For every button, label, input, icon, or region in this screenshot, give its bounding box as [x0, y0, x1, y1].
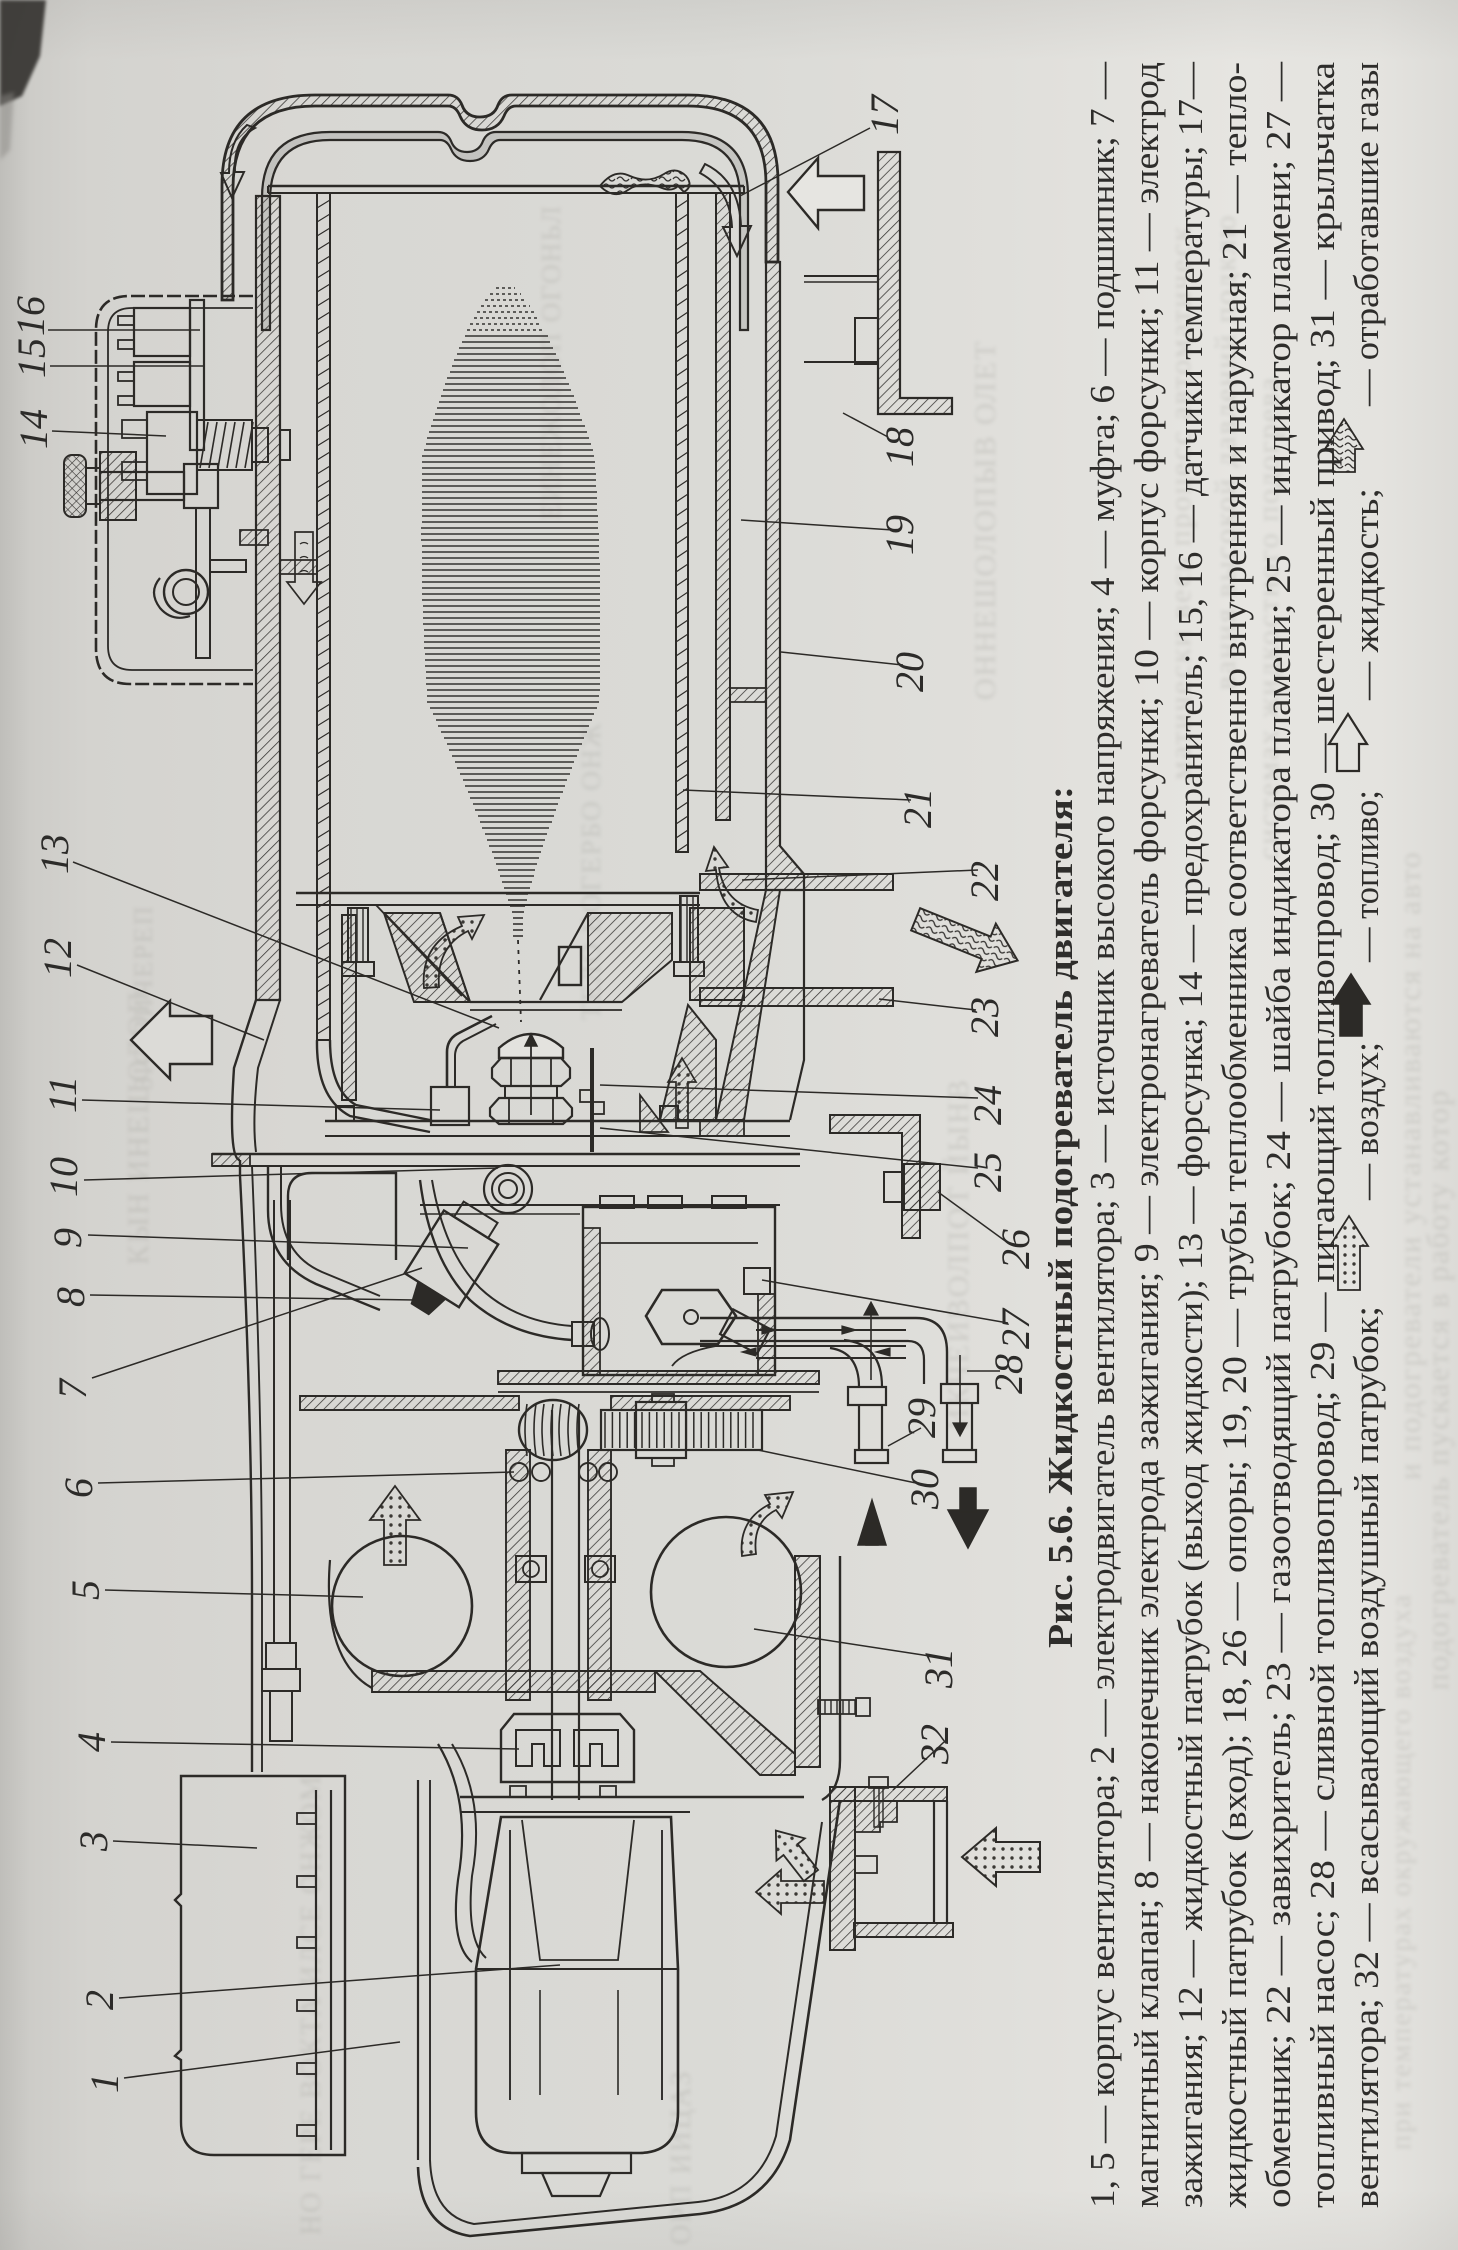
svg-text:1: 1 — [82, 2073, 127, 2093]
svg-text:14: 14 — [11, 409, 56, 449]
svg-text:— жидкость;: — жидкость; — [1347, 488, 1386, 701]
svg-text:21: 21 — [895, 788, 940, 828]
svg-text:жидкостный патрубок (вход); 18: жидкостный патрубок (вход); 18, 26 — опо… — [1215, 62, 1254, 2209]
svg-text:ОРП ИИЦАЗ: ОРП ИИЦАЗ — [666, 2070, 697, 2245]
svg-text:18: 18 — [877, 427, 922, 467]
svg-text:ЕИНЕЖОЛОП ОГОНЬЛ: ЕИНЕЖОЛОП ОГОНЬЛ — [536, 204, 566, 520]
svg-text:9: 9 — [45, 1228, 90, 1248]
svg-text:подогреватель пускается в рабо: подогреватель пускается в работу котор — [1420, 1088, 1455, 1690]
svg-text:29: 29 — [899, 1398, 944, 1438]
svg-text:24: 24 — [965, 1085, 1010, 1125]
svg-text:26: 26 — [993, 1229, 1038, 1269]
svg-text:3: 3 — [71, 1831, 116, 1852]
svg-text:22: 22 — [962, 861, 1007, 901]
svg-text:1, 5 — корпус вентилятора; 2 —: 1, 5 — корпус вентилятора; 2 — электродв… — [1083, 61, 1122, 2208]
svg-text:4: 4 — [69, 1732, 114, 1752]
svg-text:11: 11 — [40, 1076, 85, 1113]
svg-text:зажигания; 12 — жидкостный пат: зажигания; 12 — жидкостный патрубок (вых… — [1171, 61, 1210, 2208]
svg-text:топливный насос; 28 — сливной: топливный насос; 28 — сливной топливопро… — [1303, 61, 1342, 2208]
svg-text:7: 7 — [50, 1377, 95, 1399]
svg-text:— отработавшие газы: — отработавшие газы — [1347, 62, 1386, 407]
svg-text:5: 5 — [63, 1580, 108, 1600]
svg-text:20: 20 — [887, 652, 932, 692]
svg-text:13: 13 — [32, 834, 77, 874]
svg-text:магнитный клапан; 8 — наконечн: магнитный клапан; 8 — наконечник электро… — [1127, 62, 1166, 2208]
svg-text:15: 15 — [9, 338, 54, 378]
svg-text:ОННЕШОЛОПЫВ ОЛЕТ: ОННЕШОЛОПЫВ ОЛЕТ — [969, 340, 1002, 700]
svg-text:19: 19 — [877, 515, 922, 555]
svg-text:31: 31 — [916, 1648, 961, 1689]
svg-text:10: 10 — [41, 1157, 86, 1197]
svg-text:30: 30 — [902, 1469, 947, 1510]
svg-text:28: 28 — [986, 1354, 1031, 1394]
svg-text:12: 12 — [35, 938, 80, 978]
svg-text:НО ГЕРЕ ВОКТА ИЛСЕ ОНЖОМ: НО ГЕРЕ ВОКТА ИЛСЕ ОНЖОМ — [296, 1774, 327, 2235]
svg-text:обменник; 22 — завихритель; 23: обменник; 22 — завихритель; 23 — газоотв… — [1259, 61, 1298, 2208]
svg-text:при температурах окружающего в: при температурах окружающего воздуха — [1386, 1593, 1417, 2150]
svg-text:8: 8 — [48, 1287, 93, 1307]
svg-text:— топливо;: — топливо; — [1347, 790, 1386, 963]
svg-text:16: 16 — [8, 296, 53, 336]
svg-text:— воздух;: — воздух; — [1347, 1042, 1386, 1201]
svg-text:6: 6 — [56, 1478, 101, 1498]
svg-text:27: 27 — [993, 1307, 1038, 1349]
svg-text:Рис. 5.6. Жидкостный подогрева: Рис. 5.6. Жидкостный подогреватель двига… — [1041, 786, 1080, 1648]
svg-text:23: 23 — [962, 997, 1007, 1037]
svg-text:вентилятора; 32 — всасывающий: вентилятора; 32 — всасывающий воздушный … — [1347, 1306, 1386, 2208]
svg-text:17: 17 — [862, 93, 907, 135]
svg-text:2: 2 — [77, 1990, 122, 2010]
svg-text:32: 32 — [912, 1724, 957, 1765]
svg-text:25: 25 — [965, 1152, 1010, 1192]
